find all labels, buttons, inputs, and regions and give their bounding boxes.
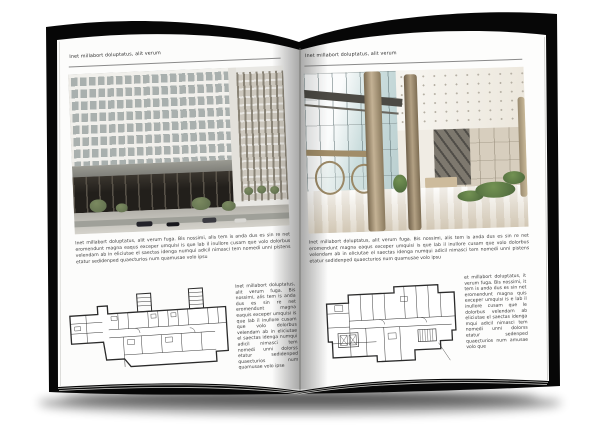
- right-page-content: Inet millabort doluptatus, alit verum: [297, 34, 548, 388]
- right-page-header: Inet millabort doluptatus, alit verum: [305, 52, 365, 59]
- interior-photo: [304, 67, 529, 234]
- floor-plan-right: [319, 272, 463, 371]
- adjacent-building: [236, 71, 288, 202]
- car: [136, 221, 152, 227]
- right-body-text: Inet millabort doluptatus, alit verum fu…: [309, 233, 530, 265]
- left-plan-caption: Inet millabort doluptatus, alit verum fu…: [235, 281, 299, 370]
- exterior-photo: [68, 66, 290, 235]
- left-body-text: Inet millabort doluptatus, alit verum fu…: [75, 231, 291, 265]
- car: [202, 217, 216, 223]
- reception-bench: [425, 177, 457, 188]
- plan-outline: [326, 284, 457, 364]
- plan-outline: [69, 299, 229, 371]
- book-mockup-canvas: Inet millabort doluptatus, alit verum: [0, 0, 600, 446]
- plan-stair-tower: [137, 293, 152, 312]
- plan-stair-tower: [188, 288, 203, 309]
- left-page-content: Inet millabort doluptatus, alit verum: [53, 35, 305, 390]
- facade-window-grid: [68, 68, 232, 167]
- car: [166, 222, 179, 227]
- car: [234, 218, 246, 222]
- left-page-header: Inet millabort doluptatus, alit verum: [69, 52, 129, 60]
- floor-plan-left: [62, 276, 236, 386]
- right-plan-caption: et millabort doluptatus, it verum fuga. …: [464, 273, 528, 350]
